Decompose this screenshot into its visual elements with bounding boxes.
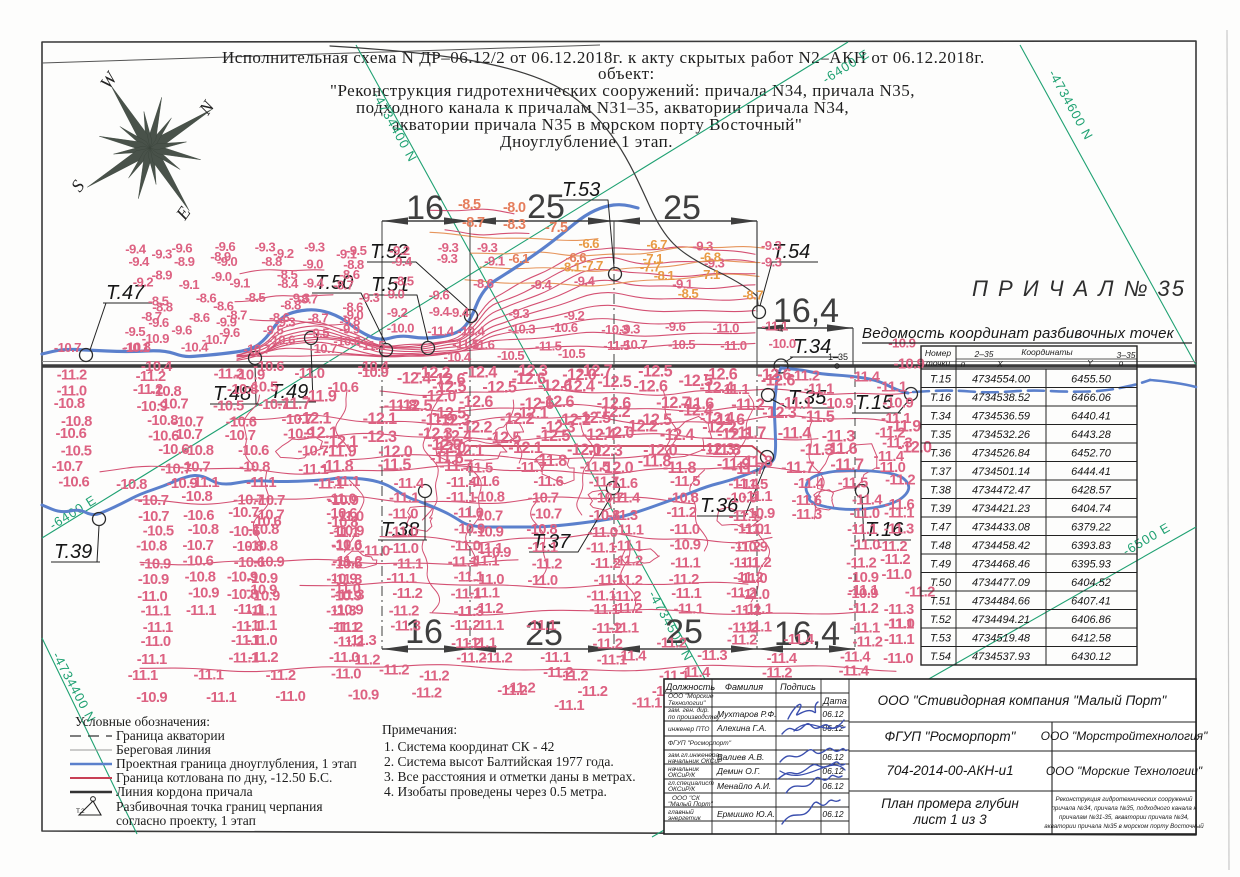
svg-text:-7.5: -7.5 [545,220,568,236]
svg-text:-11.2: -11.2 [612,601,642,617]
svg-text:-11.4: -11.4 [874,449,905,465]
svg-text:Менайло А.И.: Менайло А.И. [717,781,771,791]
svg-text:-11.5: -11.5 [359,338,386,353]
svg-text:Береговая линия: Береговая линия [116,742,211,757]
svg-text:ОКСиР/К: ОКСиР/К [668,772,696,779]
svg-text:-12.3: -12.3 [762,404,796,422]
svg-text:4734458.42: 4734458.42 [972,540,1030,552]
svg-text:-10.7: -10.7 [179,460,210,476]
svg-text:-11.2: -11.2 [852,635,882,651]
svg-text:-12.5: -12.5 [597,373,631,391]
svg-text:инженер ПТО: инженер ПТО [668,726,710,733]
svg-text:3. Все расстояния и отметки да: 3. Все расстояния и отметки даны в метра… [384,769,636,784]
svg-text:-11.4: -11.4 [839,664,870,680]
svg-text:Т.50: Т.50 [930,577,952,589]
svg-text:-9.4: -9.4 [303,276,325,291]
svg-text:-12.3: -12.3 [541,419,575,437]
svg-text:-8.8: -8.8 [280,297,301,312]
svg-text:-10.4: -10.4 [444,349,472,364]
svg-text:-9.2: -9.2 [387,305,408,320]
svg-text:-10.8: -10.8 [327,515,358,531]
svg-text:-10.7: -10.7 [225,428,256,444]
svg-text:25: 25 [663,189,701,227]
svg-text:4734532.26: 4734532.26 [972,429,1031,441]
svg-text:-10.6: -10.6 [268,333,295,348]
svg-text:Т.51: Т.51 [930,595,951,607]
svg-text:-11.2: -11.2 [248,650,278,666]
svg-text:-10.6: -10.6 [333,333,360,348]
svg-text:о: о [1119,358,1124,368]
svg-text:06.12: 06.12 [822,781,844,791]
svg-text:-8.5: -8.5 [277,267,298,282]
svg-text:-11.1: -11.1 [884,617,914,633]
svg-text:-11.9: -11.9 [888,418,922,436]
svg-text:ООО "Стивидорная компания "Мал: ООО "Стивидорная компания "Малый Порт" [878,693,1168,708]
svg-text:-10.8: -10.8 [136,538,167,554]
svg-text:-11.0: -11.0 [850,538,880,554]
svg-text:-9.3: -9.3 [437,251,458,266]
svg-text:-11.7: -11.7 [830,456,864,474]
svg-text:-11.7: -11.7 [733,424,767,442]
svg-text:Т.39: Т.39 [930,503,951,515]
svg-text:-11.1: -11.1 [761,318,788,333]
svg-text:-11.0: -11.0 [360,544,390,560]
svg-text:4734484.66: 4734484.66 [972,595,1031,607]
svg-text:точки: точки [926,358,951,368]
svg-text:Т.54: Т.54 [930,651,951,663]
svg-text:п: п [961,359,966,369]
svg-text:-11.2: -11.2 [741,555,771,571]
svg-text:-8.7: -8.7 [743,288,764,303]
svg-text:-10.5: -10.5 [668,337,695,352]
svg-text:Примечания:: Примечания: [382,722,457,737]
svg-text:-11.0: -11.0 [331,666,361,682]
svg-text:X: X [996,359,1003,369]
svg-text:-10.7: -10.7 [182,538,213,554]
svg-text:-9.4: -9.4 [574,273,596,288]
svg-text:4734519.48: 4734519.48 [972,632,1031,644]
svg-text:-11.6: -11.6 [533,474,563,490]
svg-text:-9.3: -9.3 [619,322,640,337]
svg-text:-10.8: -10.8 [116,477,147,493]
svg-text:-10.5: -10.5 [213,399,244,415]
svg-text:-10.7: -10.7 [52,459,83,475]
svg-text:Т.2: Т.2 [76,808,85,815]
svg-text:-11.0: -11.0 [332,539,362,555]
svg-text:Разбивочная точка границ черпа: Разбивочная точка границ черпания [116,799,323,814]
svg-text:П Р И Ч А Л № 35: П Р И Ч А Л № 35 [972,276,1186,301]
svg-text:-11.1: -11.1 [674,601,704,617]
svg-text:1–35: 1–35 [828,352,848,362]
svg-text:-11.3: -11.3 [884,522,914,538]
svg-text:-11.1: -11.1 [128,668,158,684]
svg-text:-11.1: -11.1 [743,602,773,618]
svg-text:-11.4: -11.4 [784,632,815,648]
svg-text:-8.0: -8.0 [503,200,526,216]
svg-text:-9.3: -9.3 [151,247,172,262]
svg-text:4734501.14: 4734501.14 [972,466,1030,478]
svg-text:-10.0: -10.0 [387,321,414,336]
svg-text:Т.35: Т.35 [930,429,952,441]
svg-text:-8.7: -8.7 [462,215,485,231]
svg-text:-11.1: -11.1 [884,632,914,648]
svg-text:-8.6: -8.6 [343,299,364,314]
svg-text:-11.1: -11.1 [470,586,500,602]
svg-text:Ермишко Ю.А.: Ермишко Ю.А. [717,809,775,819]
svg-text:акватории причала №35 в морско: акватории причала №35 в морском порту Во… [1044,823,1204,830]
svg-text:-10.3: -10.3 [508,321,535,336]
svg-text:-10.7: -10.7 [202,332,229,347]
svg-text:-8.6: -8.6 [213,298,234,313]
svg-text:-10.9: -10.9 [136,690,167,706]
svg-text:6379.22: 6379.22 [1071,521,1111,533]
svg-text:Т.36: Т.36 [930,447,952,459]
svg-text:-10.8: -10.8 [526,522,557,538]
svg-text:-11.3: -11.3 [792,507,822,523]
svg-text:-11.0: -11.0 [883,651,913,667]
svg-text:-11.2: -11.2 [332,554,362,570]
svg-text:Т.39: Т.39 [54,541,92,563]
svg-text:-11.1: -11.1 [741,522,771,538]
svg-text:-9.3: -9.3 [304,239,325,254]
svg-text:-10.8: -10.8 [239,459,270,475]
svg-text:причала №34, причала №35, подх: причала №34, причала №35, подходного кан… [1052,805,1198,812]
svg-text:-10.7: -10.7 [171,427,202,443]
svg-text:Т.53: Т.53 [930,632,952,644]
svg-text:-12.6: -12.6 [431,370,465,388]
svg-text:-7.1: -7.1 [643,251,664,266]
svg-text:-11.1: -11.1 [474,618,504,634]
svg-text:4. Изобаты проведены через 0.5: 4. Изобаты проведены через 0.5 метра. [384,784,607,799]
svg-text:-9.0: -9.0 [303,257,324,272]
svg-text:-10.7: -10.7 [528,490,559,506]
svg-text:ОКСиР/К: ОКСиР/К [668,786,696,793]
svg-text:-10.8: -10.8 [54,396,85,412]
svg-text:-10.6: -10.6 [238,443,269,459]
svg-text:-12.3: -12.3 [588,442,622,460]
svg-text:Номер: Номер [925,348,951,358]
svg-text:-11.0: -11.0 [388,507,418,523]
svg-text:-10.9: -10.9 [737,540,768,556]
svg-text:-11.2: -11.2 [613,553,643,569]
svg-text:-11.0: -11.0 [720,338,747,353]
svg-text:-9.0: -9.0 [211,269,232,284]
svg-text:-12.4: -12.4 [397,370,431,388]
svg-text:-10.8: -10.8 [474,489,505,505]
svg-text:-11.8: -11.8 [320,458,354,476]
svg-text:ФГУП "Росморпорт": ФГУП "Росморпорт" [885,729,1017,744]
svg-text:-9.3: -9.3 [275,314,296,329]
svg-text:-11.1: -11.1 [613,539,643,555]
svg-text:-6.6: -6.6 [579,236,600,251]
svg-text:Проектная граница дноуглублени: Проектная граница дноуглубления, 1 этап [116,756,357,771]
svg-text:ФГУП "Росморпорт": ФГУП "Росморпорт" [668,740,732,747]
svg-text:-8.7: -8.7 [308,310,329,325]
svg-text:-11.6: -11.6 [468,337,495,352]
svg-text:-7.7: -7.7 [582,258,603,273]
svg-text:-8.9: -8.9 [174,254,195,269]
svg-text:-11.2: -11.2 [532,557,562,573]
svg-text:6404.52: 6404.52 [1071,577,1111,589]
svg-text:-11.0: -11.0 [141,634,171,650]
svg-text:-9.3: -9.3 [761,238,782,253]
svg-text:-11.2: -11.2 [57,368,87,384]
svg-text:-8.6: -8.6 [339,267,360,282]
svg-text:-8.5: -8.5 [245,290,266,305]
svg-text:-9.4: -9.4 [429,304,451,319]
svg-text:-11.1: -11.1 [247,618,277,634]
svg-text:-11.1: -11.1 [609,621,639,637]
svg-text:-11.2: -11.2 [885,473,915,489]
svg-text:Т.48: Т.48 [930,540,952,552]
svg-text:-8.8: -8.8 [152,299,173,314]
svg-text:-10.8: -10.8 [247,539,278,555]
svg-text:ООО "Морстройтехнология": ООО "Морстройтехнология" [1041,729,1208,743]
svg-text:-10.9: -10.9 [894,357,925,373]
svg-text:4734554.00: 4734554.00 [972,373,1031,385]
svg-text:Условные обозначения:: Условные обозначения: [75,714,210,729]
svg-text:-9.1: -9.1 [336,247,357,262]
svg-text:4734472.47: 4734472.47 [972,484,1031,496]
svg-text:-11.1: -11.1 [877,380,907,396]
svg-text:Валиев А.В.: Валиев А.В. [717,752,764,762]
svg-text:-11.4: -11.4 [778,424,812,442]
svg-text:-12.6: -12.6 [633,377,667,395]
svg-text:-9.1: -9.1 [484,253,505,268]
svg-text:-12.4: -12.4 [679,401,713,419]
svg-text:-12.6: -12.6 [761,372,795,390]
svg-text:-11.3: -11.3 [390,619,420,635]
svg-text:-10.7: -10.7 [243,341,270,356]
svg-text:-10.9: -10.9 [253,555,284,571]
svg-text:-6.8: -6.8 [700,249,721,264]
svg-text:06.12: 06.12 [822,709,844,719]
svg-text:Алехина Г.А.: Алехина Г.А. [716,723,767,733]
svg-text:6440.41: 6440.41 [1071,410,1111,422]
svg-text:-9.1: -9.1 [229,276,250,291]
svg-text:16: 16 [406,189,444,227]
svg-text:План промера глубин: План промера глубин [881,796,1019,811]
svg-text:-11.1: -11.1 [540,650,570,666]
svg-text:Т.47: Т.47 [930,521,952,533]
svg-text:Т.16: Т.16 [930,392,952,404]
svg-text:-11.2: -11.2 [848,601,878,617]
svg-text:-10.7: -10.7 [138,493,169,509]
svg-text:Координаты: Координаты [1021,347,1073,357]
svg-text:-11.1: -11.1 [393,556,423,572]
svg-text:Граница акватории: Граница акватории [116,728,225,743]
svg-text:-12.1: -12.1 [324,433,358,451]
svg-text:-11.3: -11.3 [884,602,914,618]
svg-text:-11.7: -11.7 [781,459,815,477]
svg-text:6452.70: 6452.70 [1071,447,1112,459]
svg-text:-11.1: -11.1 [847,522,877,538]
svg-text:-10.5: -10.5 [61,443,92,459]
svg-text:6444.41: 6444.41 [1071,466,1111,478]
svg-text:-10.9: -10.9 [348,688,379,704]
svg-text:-11.1: -11.1 [742,489,772,505]
svg-text:по производству: по производству [668,713,721,721]
svg-text:-11.1: -11.1 [632,696,662,712]
svg-text:Т.34: Т.34 [793,336,831,358]
svg-text:-8.9: -8.9 [210,249,231,264]
svg-text:-8.6: -8.6 [189,310,210,325]
svg-text:-10.6: -10.6 [58,474,89,490]
svg-text:-11.0: -11.0 [275,689,305,705]
svg-text:Должность: Должность [665,682,715,692]
svg-text:-11.1: -11.1 [137,652,167,668]
svg-text:-8.5: -8.5 [458,197,481,213]
svg-text:06.12: 06.12 [822,752,844,762]
svg-text:-12.2: -12.2 [458,419,492,437]
svg-text:-11.3: -11.3 [346,633,376,649]
svg-text:-8.6: -8.6 [473,276,494,291]
svg-text:-10.6: -10.6 [56,426,87,442]
svg-text:-11.2: -11.2 [657,636,687,652]
svg-text:зам. ген. дир.: зам. ген. дир. [667,706,709,714]
svg-text:-11.0: -11.0 [670,522,700,538]
svg-text:Т.49: Т.49 [930,558,951,570]
svg-text:6393.83: 6393.83 [1071,540,1112,552]
svg-text:-9.2: -9.2 [273,246,294,261]
svg-text:-12.6: -12.6 [512,370,546,388]
svg-text:"Малый Порт": "Малый Порт" [668,800,714,808]
svg-text:2. Система высот Балтийская 19: 2. Система высот Балтийская 1977 года. [384,754,614,769]
svg-text:4734526.84: 4734526.84 [972,447,1030,459]
svg-text:-11.1: -11.1 [613,522,643,538]
svg-text:-11.1: -11.1 [330,474,360,490]
svg-text:4734433.08: 4734433.08 [972,521,1031,533]
svg-text:-10.9: -10.9 [480,545,511,561]
svg-text:-11.1: -11.1 [446,490,476,506]
svg-text:-11.2: -11.2 [482,650,512,666]
svg-text:-11.2: -11.2 [392,586,422,602]
svg-text:-11.2: -11.2 [473,601,503,617]
svg-text:4734537.93: 4734537.93 [972,651,1031,663]
svg-text:-9.4: -9.4 [448,305,470,320]
svg-text:-10.8: -10.8 [668,490,699,506]
svg-text:-9.6: -9.6 [172,240,193,255]
svg-text:-11.4: -11.4 [427,324,455,339]
svg-text:4734468.46: 4734468.46 [972,558,1031,570]
svg-text:-11.1: -11.1 [848,583,878,599]
svg-text:-11.1: -11.1 [389,490,419,506]
svg-text:-10.8: -10.8 [185,570,216,586]
svg-text:энергетик: энергетик [668,815,702,822]
svg-text:Технологии": Технологии" [668,700,706,707]
svg-text:-10.9: -10.9 [188,586,219,602]
svg-text:-10.8: -10.8 [188,522,219,538]
svg-text:-11.1: -11.1 [386,571,416,587]
svg-text:-10.6: -10.6 [550,320,577,335]
svg-text:-11.1: -11.1 [246,475,276,491]
svg-text:-10.9: -10.9 [140,556,171,572]
svg-text:-11.1: -11.1 [141,603,171,619]
svg-text:6412.58: 6412.58 [1071,632,1112,644]
svg-text:-11.0: -11.0 [528,573,558,589]
svg-text:-11.6: -11.6 [884,497,914,513]
svg-text:-11.6: -11.6 [430,449,464,467]
svg-text:-9.3: -9.3 [761,255,782,270]
svg-text:-10.6: -10.6 [183,553,214,569]
svg-text:-10.9: -10.9 [138,572,169,588]
svg-text:-9.6: -9.6 [148,315,169,330]
svg-text:6428.57: 6428.57 [1071,484,1112,496]
svg-text:-11.6: -11.6 [469,474,499,490]
svg-text:4734536.59: 4734536.59 [972,410,1030,422]
svg-text:-10.8: -10.8 [183,443,214,459]
svg-text:-11.1: -11.1 [526,618,556,634]
svg-text:-9.8: -9.8 [339,314,360,329]
svg-text:-11.5: -11.5 [670,474,700,490]
svg-text:ООО "Морские: ООО "Морские [668,693,714,700]
svg-text:-11.3: -11.3 [697,648,727,664]
svg-text:-11.4: -11.4 [794,476,825,492]
svg-text:-11.5: -11.5 [838,476,868,492]
svg-text:-11.2: -11.2 [727,632,757,648]
svg-text:-11.2: -11.2 [379,663,409,679]
svg-text:-11.2: -11.2 [558,669,588,685]
svg-text:-11.4: -11.4 [610,490,641,506]
svg-text:-12.2: -12.2 [623,418,657,436]
svg-text:4734421.23: 4734421.23 [972,503,1031,515]
svg-text:-11.8: -11.8 [534,452,568,470]
svg-text:согласно проекту, 1 этап: согласно проекту, 1 этап [116,813,256,828]
svg-text:-8.5: -8.5 [678,286,699,301]
svg-text:-10.9: -10.9 [670,538,701,554]
svg-text:-11.0: -11.0 [388,524,418,540]
svg-text:лист 1 из 3: лист 1 из 3 [912,812,987,827]
svg-text:-11.3: -11.3 [326,604,356,620]
svg-text:6404.74: 6404.74 [1071,503,1111,515]
svg-text:-8.9: -8.9 [152,267,173,282]
svg-text:-11.2: -11.2 [880,552,910,568]
svg-text:ООО "Морские Технологии": ООО "Морские Технологии" [1046,764,1203,778]
svg-text:-11.4: -11.4 [616,649,647,665]
svg-text:-9.6: -9.6 [429,287,450,302]
svg-text:-9.6: -9.6 [171,322,192,337]
svg-text:Ведомость координат разбивоч: Ведомость координат разбивочных точек [862,325,1175,342]
svg-text:-12.1: -12.1 [363,410,397,428]
svg-text:-11.8: -11.8 [638,452,672,470]
svg-text:-10.9: -10.9 [246,582,277,598]
svg-text:Дноуглубление 1 этап.: Дноуглубление 1 этап. [500,132,673,151]
svg-text:-11.2: -11.2 [667,505,697,521]
svg-text:-11.2: -11.2 [412,685,442,701]
svg-text:-10.7: -10.7 [138,509,169,525]
svg-text:-9.6: -9.6 [665,319,686,334]
svg-text:-10.7: -10.7 [157,396,188,412]
svg-text:-11.5: -11.5 [378,456,412,474]
svg-text:Демин О.Г.: Демин О.Г. [716,766,760,776]
svg-text:-10.7: -10.7 [620,337,647,352]
svg-text:-11.0: -11.0 [331,582,361,598]
svg-text:-11.9: -11.9 [303,388,337,406]
svg-text:-9.4: -9.4 [128,254,150,269]
svg-text:-10.0: -10.0 [769,336,796,351]
svg-text:-11.2: -11.2 [389,604,419,620]
svg-text:Фамилия: Фамилия [725,682,763,692]
svg-text:Т.34: Т.34 [930,410,951,422]
svg-text:Мухтаров Р.Ф.: Мухтаров Р.Ф. [717,709,776,719]
svg-text:6430.12: 6430.12 [1071,651,1111,663]
svg-text:-11.0: -11.0 [882,567,912,583]
svg-text:-11.2: -11.2 [266,668,296,684]
svg-text:-10.5: -10.5 [497,348,524,363]
svg-text:-11.2: -11.2 [505,681,535,697]
svg-text:06.12: 06.12 [822,809,844,819]
svg-text:-11.0: -11.0 [713,320,740,335]
